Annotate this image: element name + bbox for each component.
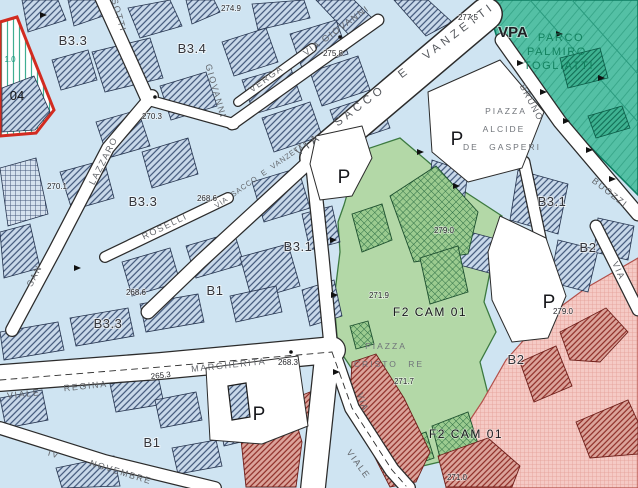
zone-label-b2-2: B2 (508, 352, 525, 367)
park-name-line2: PALMIRO (527, 46, 587, 58)
elevation-label: 270.3 (142, 112, 163, 121)
elevation-label-partial: 1.0 (4, 55, 16, 64)
elevation-label: 268.6 (126, 288, 147, 297)
zone-label-b1-2: B1 (144, 435, 161, 450)
piazza-de-gasperi-line2: ALCIDE (483, 124, 526, 134)
parking-label-4: P (253, 404, 266, 425)
zone-label-b34: B3.4 (178, 41, 207, 56)
elevation-label: 271.9 (369, 291, 390, 300)
zone-label-b31-1: B3.1 (284, 239, 313, 254)
elevation-label: 274.9 (221, 4, 242, 13)
elevation-label: 268.6 (197, 194, 218, 203)
zone-label-b31-2: B3.1 (538, 194, 567, 209)
elevation-label: 268.3 (278, 358, 299, 367)
park-name-line1: PARCO (538, 32, 584, 44)
elevation-label: 279.0 (434, 226, 455, 235)
zone-label-b33-3: B3.3 (94, 316, 123, 331)
park-name-line3: TOGLIATTI (524, 60, 594, 72)
zoning-map-canvas[interactable]: B3.3 B3.4 B3.3 B3.1 B1 B3.3 B1 B3.1 B2 B… (0, 0, 638, 488)
zone-label-vpa: VPA (498, 24, 528, 41)
elevation-label: 271.7 (394, 377, 415, 386)
elevation-label: 277.5 (458, 13, 479, 22)
elevation-label: 275.8 (323, 49, 344, 58)
parking-label-2: P (451, 129, 464, 150)
zone-label-f2cam-1: F2 CAM 01 (393, 305, 467, 319)
zone-label-b33-2: B3.3 (129, 194, 158, 209)
parking-label-1: P (338, 167, 351, 188)
zoning-map-viewport[interactable]: B3.3 B3.4 B3.3 B3.1 B1 B3.3 B1 B3.1 B2 B… (0, 0, 638, 488)
elevation-label: 271.0 (447, 473, 468, 482)
parking-structure-icon (228, 383, 250, 420)
zone-label-b2-1: B2 (580, 240, 597, 255)
zone-label-b1-1: B1 (207, 283, 224, 298)
zone-label-f2cam-2: F2 CAM 01 (429, 427, 503, 441)
piazza-cristo-re-line2: CRISTO RE (354, 359, 424, 369)
piazza-de-gasperi-line3: DE GASPERI (463, 142, 541, 152)
zone-label-b33-1: B3.3 (59, 33, 88, 48)
piazza-de-gasperi-line1: PIAZZA (485, 106, 527, 116)
elevation-label: 279.0 (553, 307, 574, 316)
elevation-label: 270.1 (47, 182, 68, 191)
parcel-04-label: 04 (10, 88, 24, 103)
piazza-cristo-re-line1: PIAZZA (365, 341, 407, 351)
